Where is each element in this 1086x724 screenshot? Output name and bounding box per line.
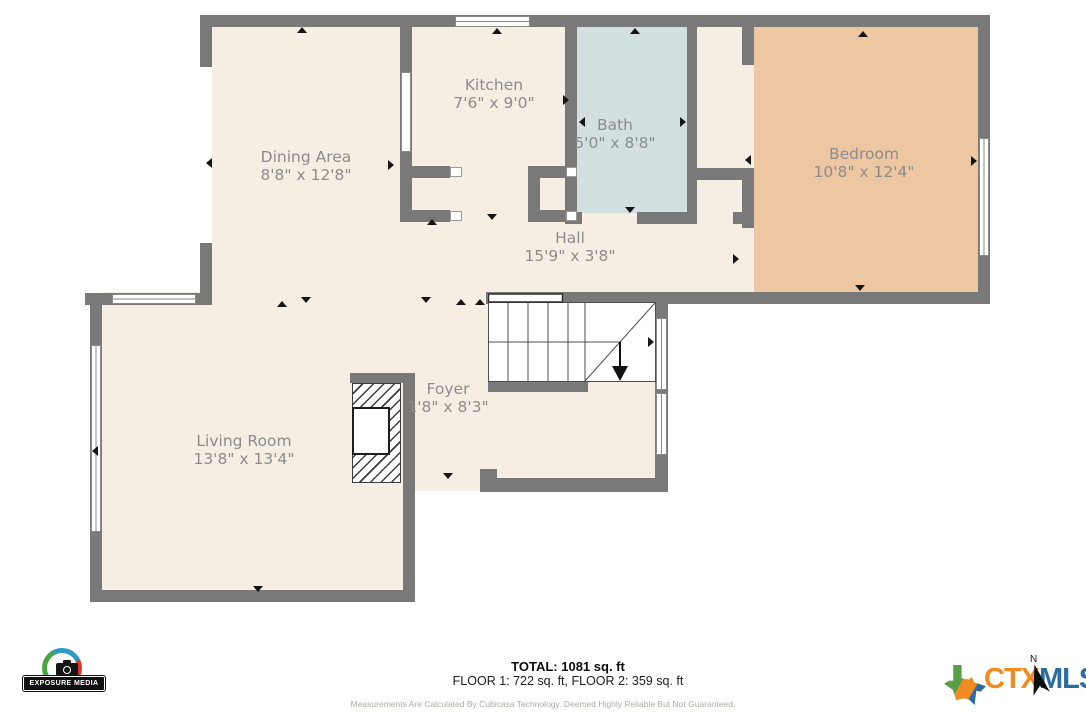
room-name: Kitchen — [453, 76, 534, 94]
north-arrow-icon: N — [1024, 654, 1054, 696]
wall-top — [200, 15, 990, 27]
marker-icon — [253, 586, 263, 592]
north-label: N — [1030, 654, 1037, 665]
marker-icon — [492, 28, 502, 34]
room-label-hall: Hall 15'9" x 3'8" — [524, 229, 615, 265]
fireplace-firebox — [352, 407, 390, 455]
marker-icon — [301, 297, 311, 303]
room-name: Living Room — [194, 432, 295, 450]
exposure-media-label: EXPOSURE MEDIA — [23, 676, 105, 691]
wall-bath-bottom-b — [637, 212, 697, 224]
camera-body-icon — [56, 663, 78, 676]
marker-icon — [625, 207, 635, 213]
wall-closet-right-bottom-arm — [528, 210, 570, 222]
marker-icon — [971, 156, 977, 166]
window-bedroom-right — [979, 138, 989, 256]
room-dimensions: 1'8" x 8'3" — [407, 398, 488, 416]
marker-icon — [297, 27, 307, 33]
wall-closet-left-top-arm — [412, 166, 450, 178]
wall-bath-bottom-c — [733, 212, 742, 224]
marker-icon — [579, 117, 585, 127]
door-closet-right-top — [566, 167, 577, 177]
opening-kitchen-dining — [401, 72, 411, 152]
room-label-bath: Bath 5'0" x 8'8" — [574, 116, 655, 152]
marker-icon — [475, 299, 485, 305]
wall-foyer-stub — [480, 469, 497, 478]
door-closet-right-bottom — [566, 211, 577, 221]
marker-icon — [206, 158, 212, 168]
door-closet-left-top — [450, 167, 462, 177]
room-label-dining-area: Dining Area 8'8" x 12'8" — [260, 148, 351, 184]
exposure-media-logo: EXPOSURE MEDIA — [18, 646, 118, 706]
marker-icon — [563, 95, 569, 105]
marker-icon — [745, 155, 751, 165]
room-dimensions: 15'9" x 3'8" — [524, 247, 615, 265]
room-dimensions: 10'8" x 12'4" — [814, 163, 915, 181]
window-kitchen-top — [455, 16, 530, 27]
room-label-foyer: Foyer 1'8" x 8'3" — [407, 380, 488, 416]
marker-icon — [487, 214, 497, 220]
room-name: Dining Area — [260, 148, 351, 166]
texas-icon — [944, 665, 986, 705]
wall-fireplace-top — [350, 373, 413, 383]
marker-icon — [855, 285, 865, 291]
marker-icon — [388, 160, 394, 170]
floor-bedroom-door — [742, 228, 754, 292]
marker-icon — [421, 297, 431, 303]
marker-icon — [92, 446, 98, 456]
room-dimensions: 7'6" x 9'0" — [453, 94, 534, 112]
room-name: Bedroom — [814, 145, 915, 163]
room-dimensions: 5'0" x 8'8" — [574, 134, 655, 152]
total-area-text: TOTAL: 1081 sq. ft — [511, 659, 625, 674]
wall-foyer-bottom — [480, 478, 668, 492]
marker-icon — [456, 299, 466, 305]
room-dimensions: 8'8" x 12'8" — [260, 166, 351, 184]
wall-bedroom-left-mid — [742, 168, 754, 228]
wall-dining-left-upper — [200, 15, 212, 67]
floor-areas-text: FLOOR 1: 722 sq. ft, FLOOR 2: 359 sq. ft — [453, 674, 684, 688]
disclaimer-text: Measurements Are Calculated By Cubicasa … — [351, 699, 736, 709]
room-label-bedroom: Bedroom 10'8" x 12'4" — [814, 145, 915, 181]
room-dimensions: 13'8" x 13'4" — [194, 450, 295, 468]
marker-icon — [733, 254, 739, 264]
room-label-living-room: Living Room 13'8" x 13'4" — [194, 432, 295, 468]
wall-bath-closet — [687, 15, 697, 213]
window-living-left — [91, 345, 101, 532]
floor-plan-page: Kitchen 7'6" x 9'0" Bath 5'0" x 8'8" Din… — [0, 0, 1086, 724]
room-label-kitchen: Kitchen 7'6" x 9'0" — [453, 76, 534, 112]
window-foyer-right-lower — [656, 393, 667, 455]
marker-icon — [443, 473, 453, 479]
marker-icon — [680, 117, 686, 127]
marker-icon — [858, 31, 868, 37]
wall-closet-right-vertical — [528, 178, 540, 210]
floor-closet-opening — [742, 65, 754, 168]
door-closet-left-bottom — [450, 211, 462, 221]
marker-icon — [630, 28, 640, 34]
room-name: Bath — [574, 116, 655, 134]
wall-closet-right-top-arm — [528, 166, 570, 178]
room-name: Foyer — [407, 380, 488, 398]
floor-foyer-notch — [415, 478, 480, 491]
wall-bedroom-left-upper — [742, 15, 754, 65]
marker-icon — [277, 301, 287, 307]
compass-needle-icon — [1025, 662, 1052, 696]
ctxmls-logo: CTXMLS N — [942, 655, 1082, 715]
window-living-step — [112, 294, 196, 304]
marker-icon — [427, 219, 437, 225]
marker-icon — [648, 337, 654, 347]
staircase — [488, 293, 658, 390]
room-name: Hall — [524, 229, 615, 247]
